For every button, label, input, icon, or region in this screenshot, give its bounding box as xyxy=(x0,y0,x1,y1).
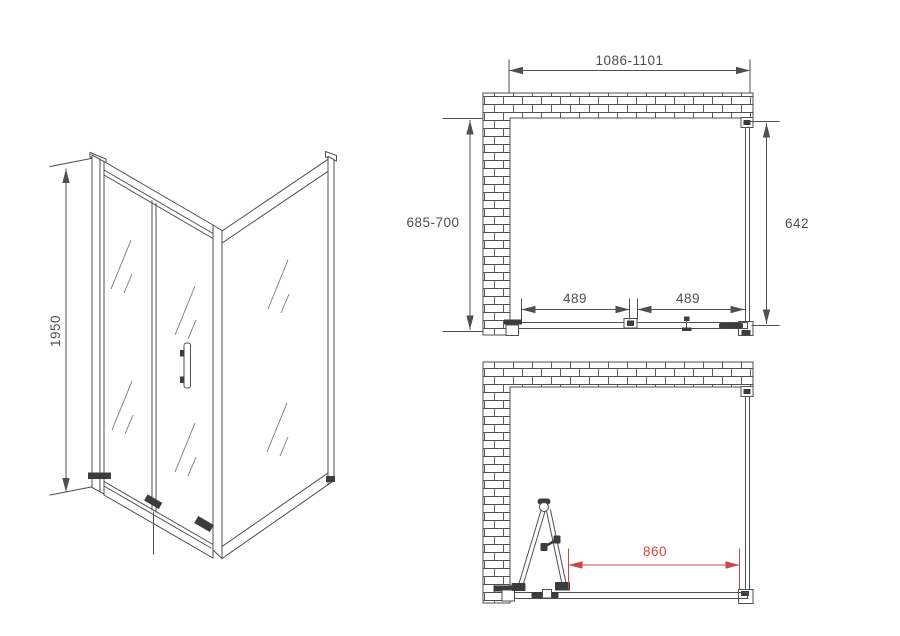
glass-marks-side xyxy=(267,260,289,456)
side-panel-dim-label: 642 xyxy=(785,216,809,231)
side-panel-dimension: 642 xyxy=(750,122,809,326)
opening-dim-label: 860 xyxy=(643,544,667,559)
perspective-view: 1950 xyxy=(48,152,337,559)
width-dimension: 1086-1101 xyxy=(509,53,750,92)
depth-dimension: 685-700 xyxy=(406,119,483,332)
side-panel-closed xyxy=(739,118,754,336)
open-door-handle xyxy=(541,536,561,552)
left-section-dimension: 489 xyxy=(522,291,630,321)
left-section-dim-label: 489 xyxy=(563,291,587,306)
front-door-frame xyxy=(88,153,222,559)
plan-view-open: 860 xyxy=(483,362,753,604)
drawing-canvas: 1950 xyxy=(0,0,900,636)
glass-marks-front xyxy=(111,240,196,476)
side-panel-3d xyxy=(222,152,337,559)
door-rail-closed xyxy=(504,317,748,336)
right-section-dimension: 489 xyxy=(638,291,745,319)
width-dim-label: 1086-1101 xyxy=(595,53,663,68)
technical-drawing: 1950 xyxy=(0,0,900,636)
depth-dim-label: 685-700 xyxy=(406,215,459,230)
right-section-dim-label: 489 xyxy=(676,291,700,306)
wall-closed xyxy=(483,93,753,335)
height-dimension: 1950 xyxy=(48,157,99,495)
plan-view-closed: 1086-1101 685-700 642 489 489 xyxy=(406,53,809,336)
height-dim-label: 1950 xyxy=(48,315,63,347)
hinge-pivot xyxy=(540,503,549,512)
opening-dimension: 860 xyxy=(569,544,740,589)
open-door xyxy=(512,499,571,599)
door-handle xyxy=(180,343,191,388)
side-panel-open xyxy=(739,387,754,604)
